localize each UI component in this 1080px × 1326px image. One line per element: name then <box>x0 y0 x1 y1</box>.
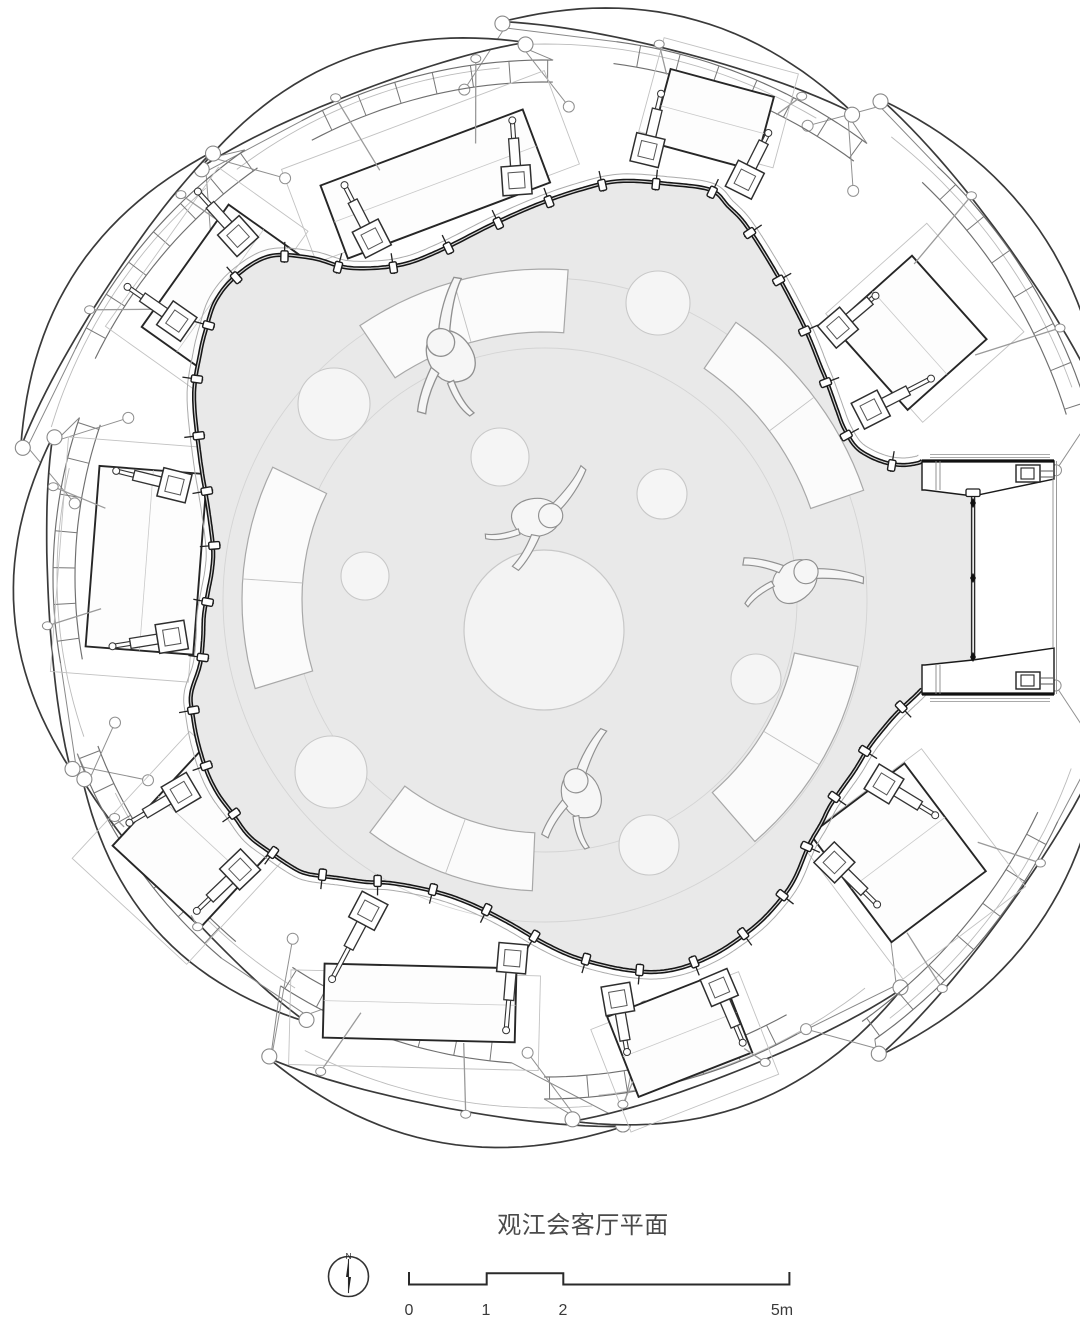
svg-text:5m: 5m <box>771 1302 793 1319</box>
svg-text:2: 2 <box>559 1302 568 1319</box>
svg-text:1: 1 <box>482 1302 491 1319</box>
svg-text:观江会客厅平面: 观江会客厅平面 <box>497 1212 669 1239</box>
svg-text:0: 0 <box>405 1302 414 1319</box>
